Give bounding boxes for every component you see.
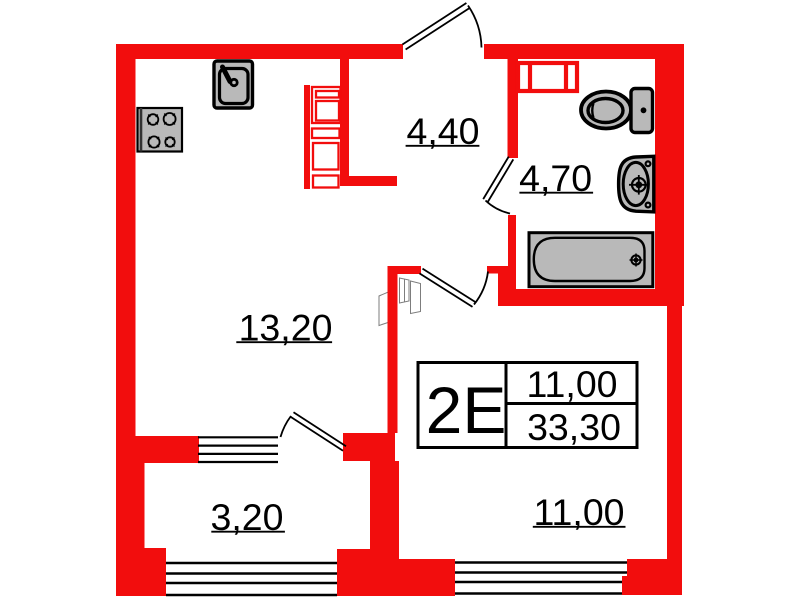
svg-text:11,00: 11,00 [526,363,617,405]
svg-text:2E: 2E [426,373,507,447]
svg-text:33,30: 33,30 [527,406,621,448]
